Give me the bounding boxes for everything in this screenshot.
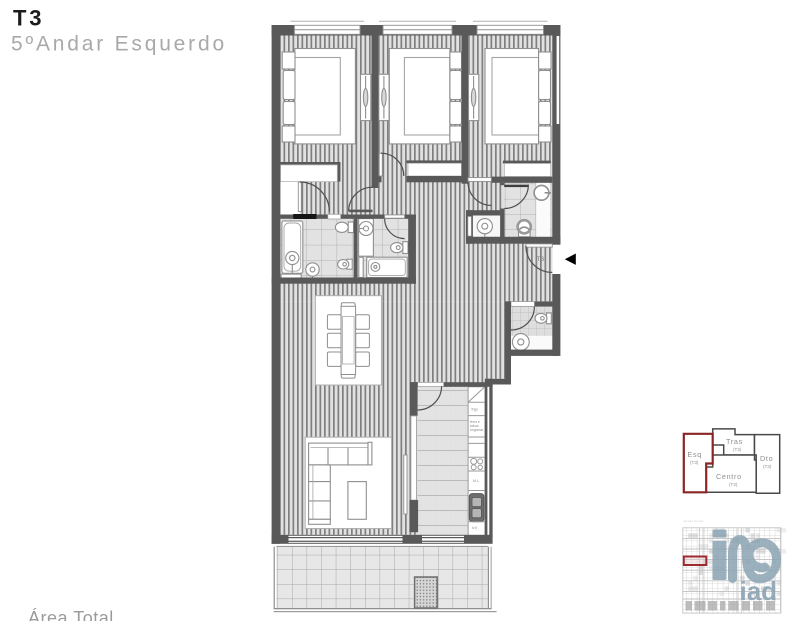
svg-text:T3: T3 <box>13 6 44 31</box>
svg-text:Área Total: Área Total <box>28 608 114 621</box>
svg-text:Tras: Tras <box>726 437 743 446</box>
svg-text:Dto: Dto <box>760 454 773 463</box>
svg-text:frigo: frigo <box>472 408 479 412</box>
svg-text:T3: T3 <box>537 256 545 263</box>
svg-text:(T2): (T2) <box>733 447 742 452</box>
svg-text:Centro: Centro <box>716 472 742 481</box>
svg-text:(T3): (T3) <box>690 460 699 465</box>
svg-text:Alcado Frente: Alcado Frente <box>684 519 704 523</box>
svg-text:iad: iad <box>740 576 778 606</box>
svg-text:5ºAndar Esquerdo: 5ºAndar Esquerdo <box>11 33 227 56</box>
svg-text:(T3): (T3) <box>763 464 772 469</box>
svg-text:lv lt: lv lt <box>472 526 477 530</box>
svg-text:M.L.: M.L. <box>473 479 480 483</box>
svg-text:(T2): (T2) <box>729 482 738 487</box>
svg-text:Esq: Esq <box>688 450 703 459</box>
svg-text:engomar: engomar <box>470 428 484 432</box>
